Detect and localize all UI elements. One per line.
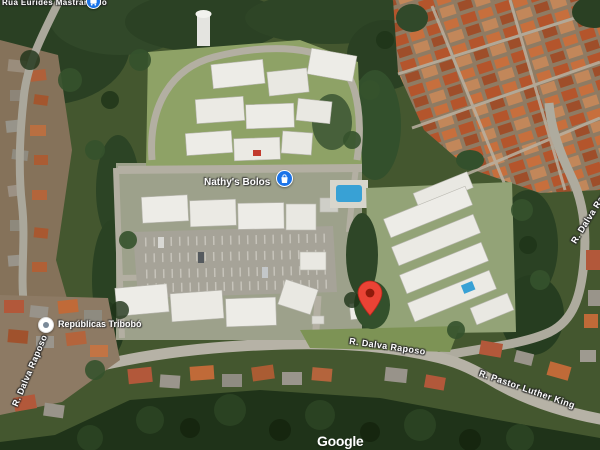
generic-poi-icon[interactable] <box>38 317 54 333</box>
swimming-pool <box>336 185 362 202</box>
google-maps-satellite-view: Rua Eurides Mastrangelo Nathy's Bolos Re… <box>0 0 600 450</box>
poi-label-nathys-bolos[interactable]: Nathy's Bolos <box>204 177 270 188</box>
poi-label-republicas[interactable]: Repúblicas Tribobó <box>58 319 142 329</box>
shopping-bag-icon[interactable] <box>276 170 293 187</box>
water-tower <box>197 14 210 46</box>
destination-pin[interactable] <box>357 280 383 317</box>
google-watermark[interactable]: Google <box>317 433 363 449</box>
